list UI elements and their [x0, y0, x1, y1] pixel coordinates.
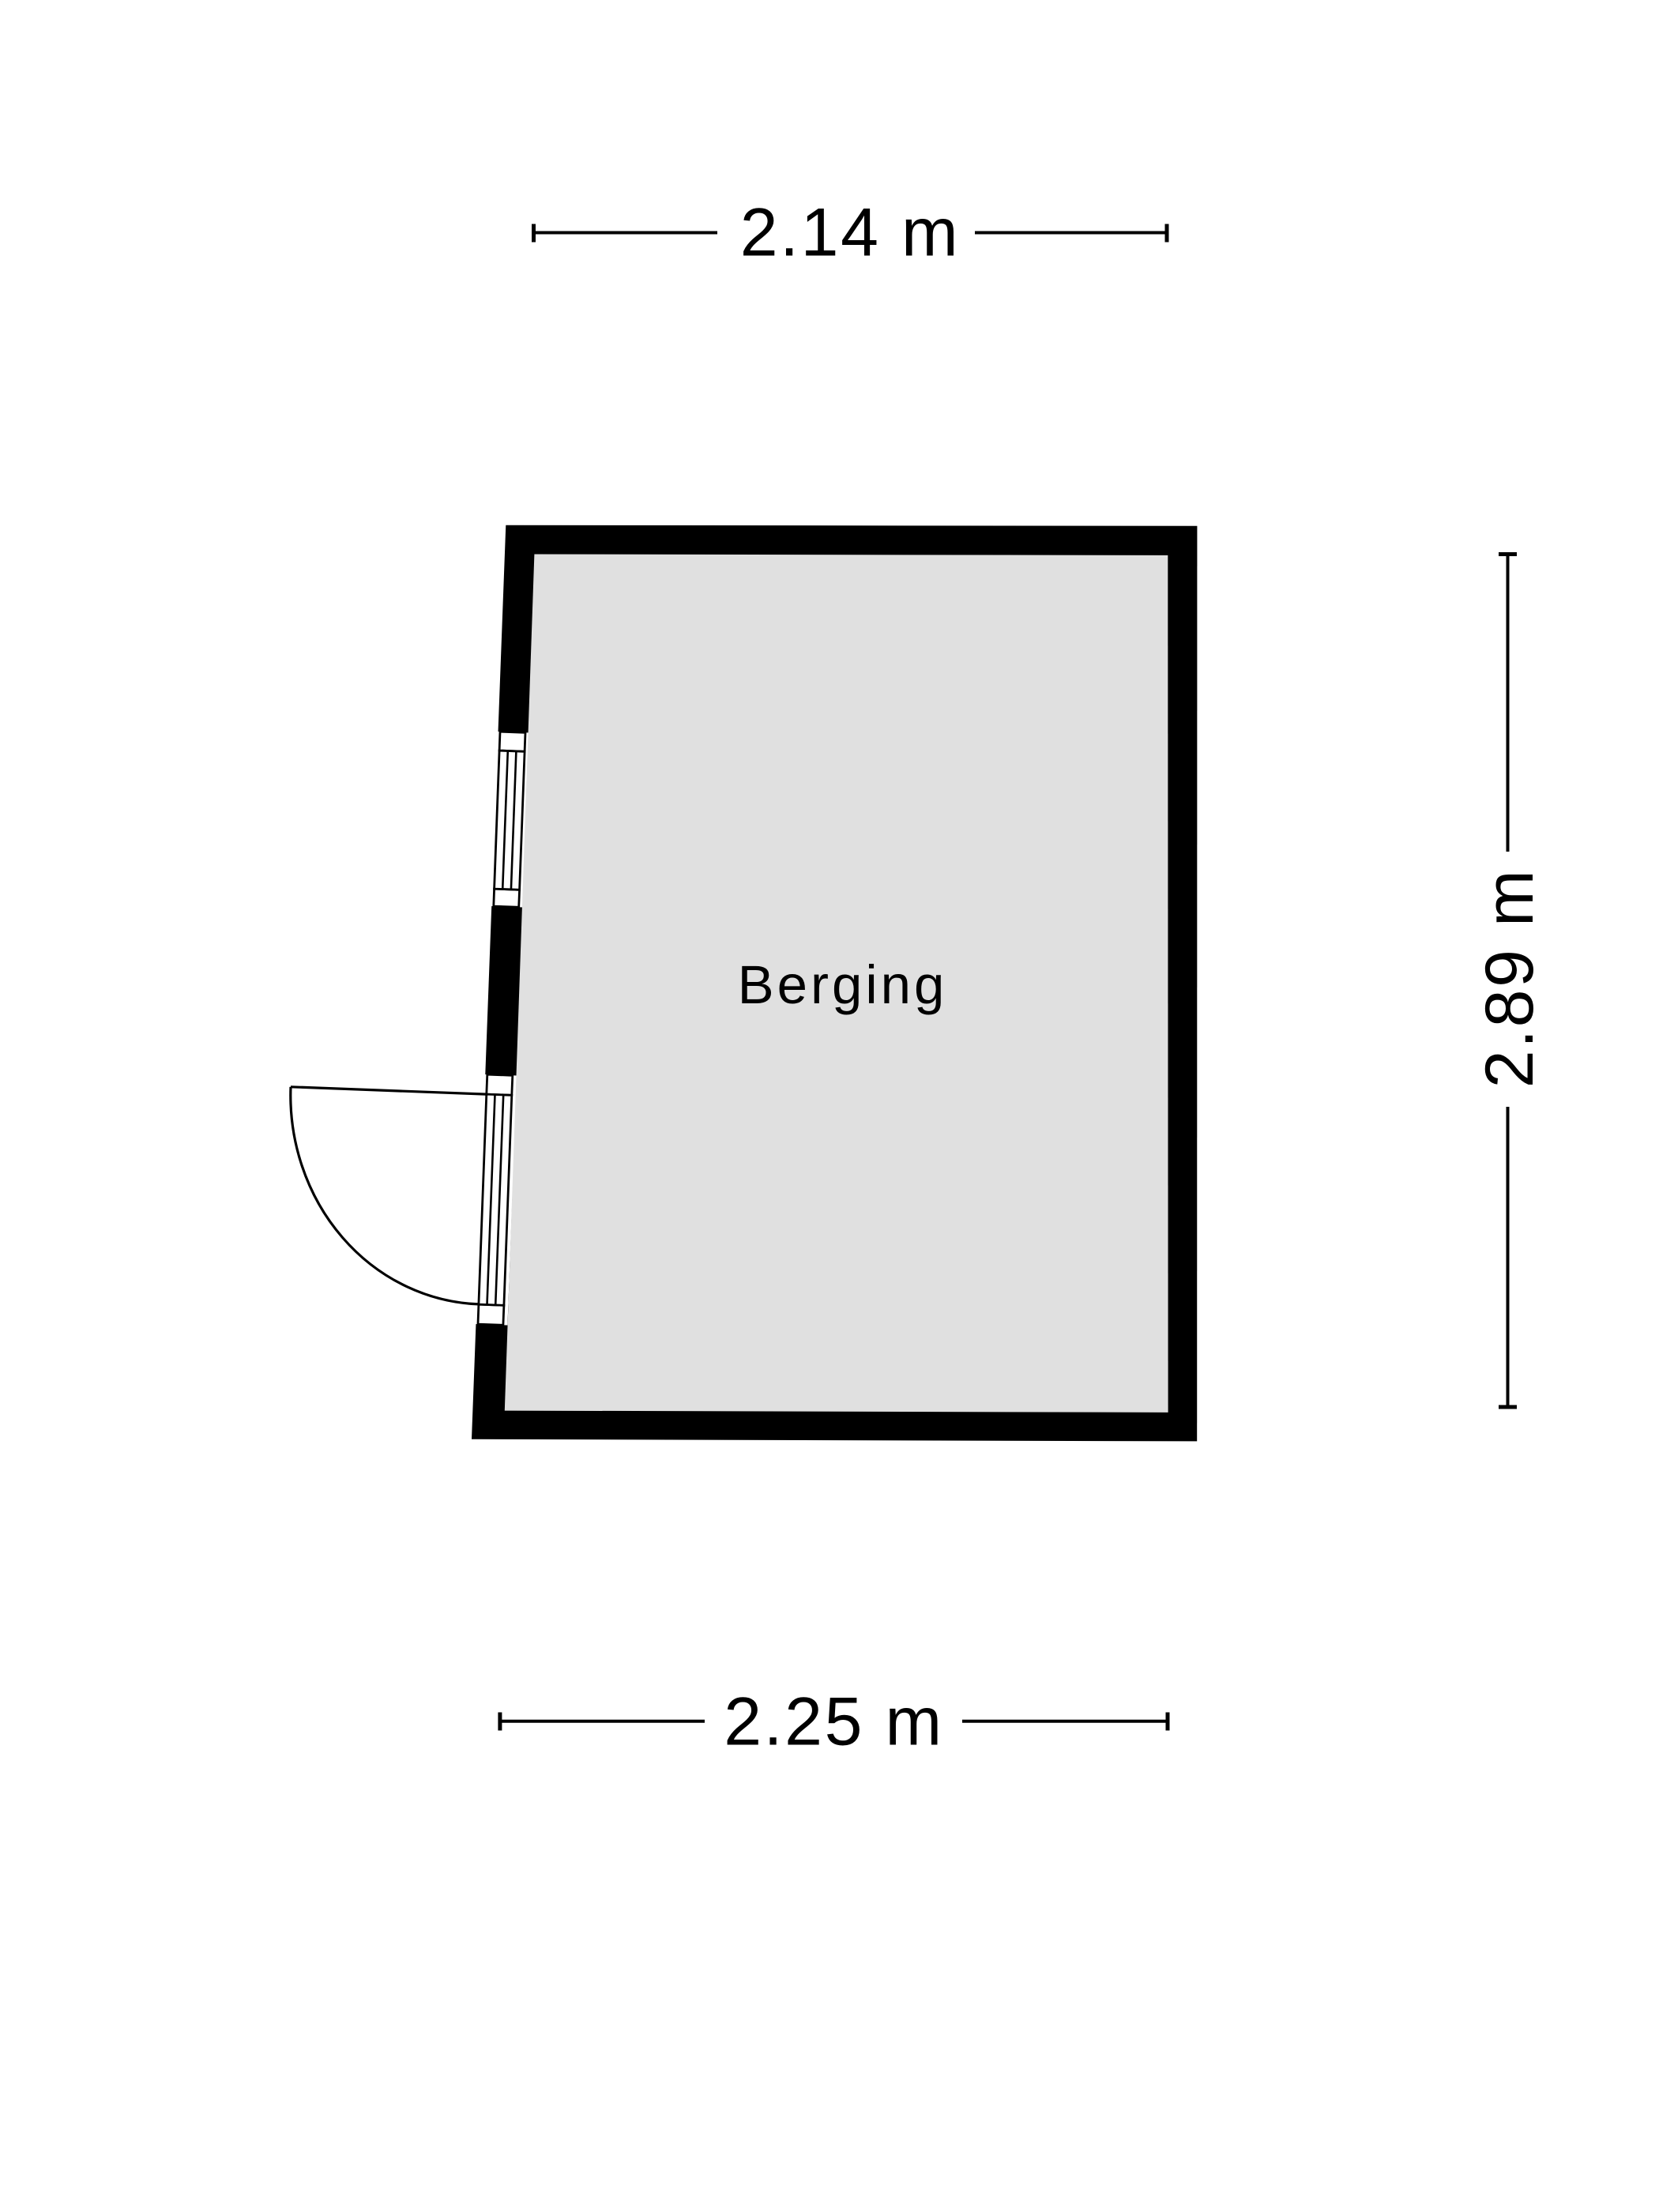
svg-text:2.14 m: 2.14 m — [740, 195, 961, 271]
svg-text:2.25 m: 2.25 m — [724, 1684, 944, 1760]
svg-text:Berging: Berging — [738, 954, 948, 1015]
svg-text:2.89 m: 2.89 m — [1472, 868, 1548, 1089]
